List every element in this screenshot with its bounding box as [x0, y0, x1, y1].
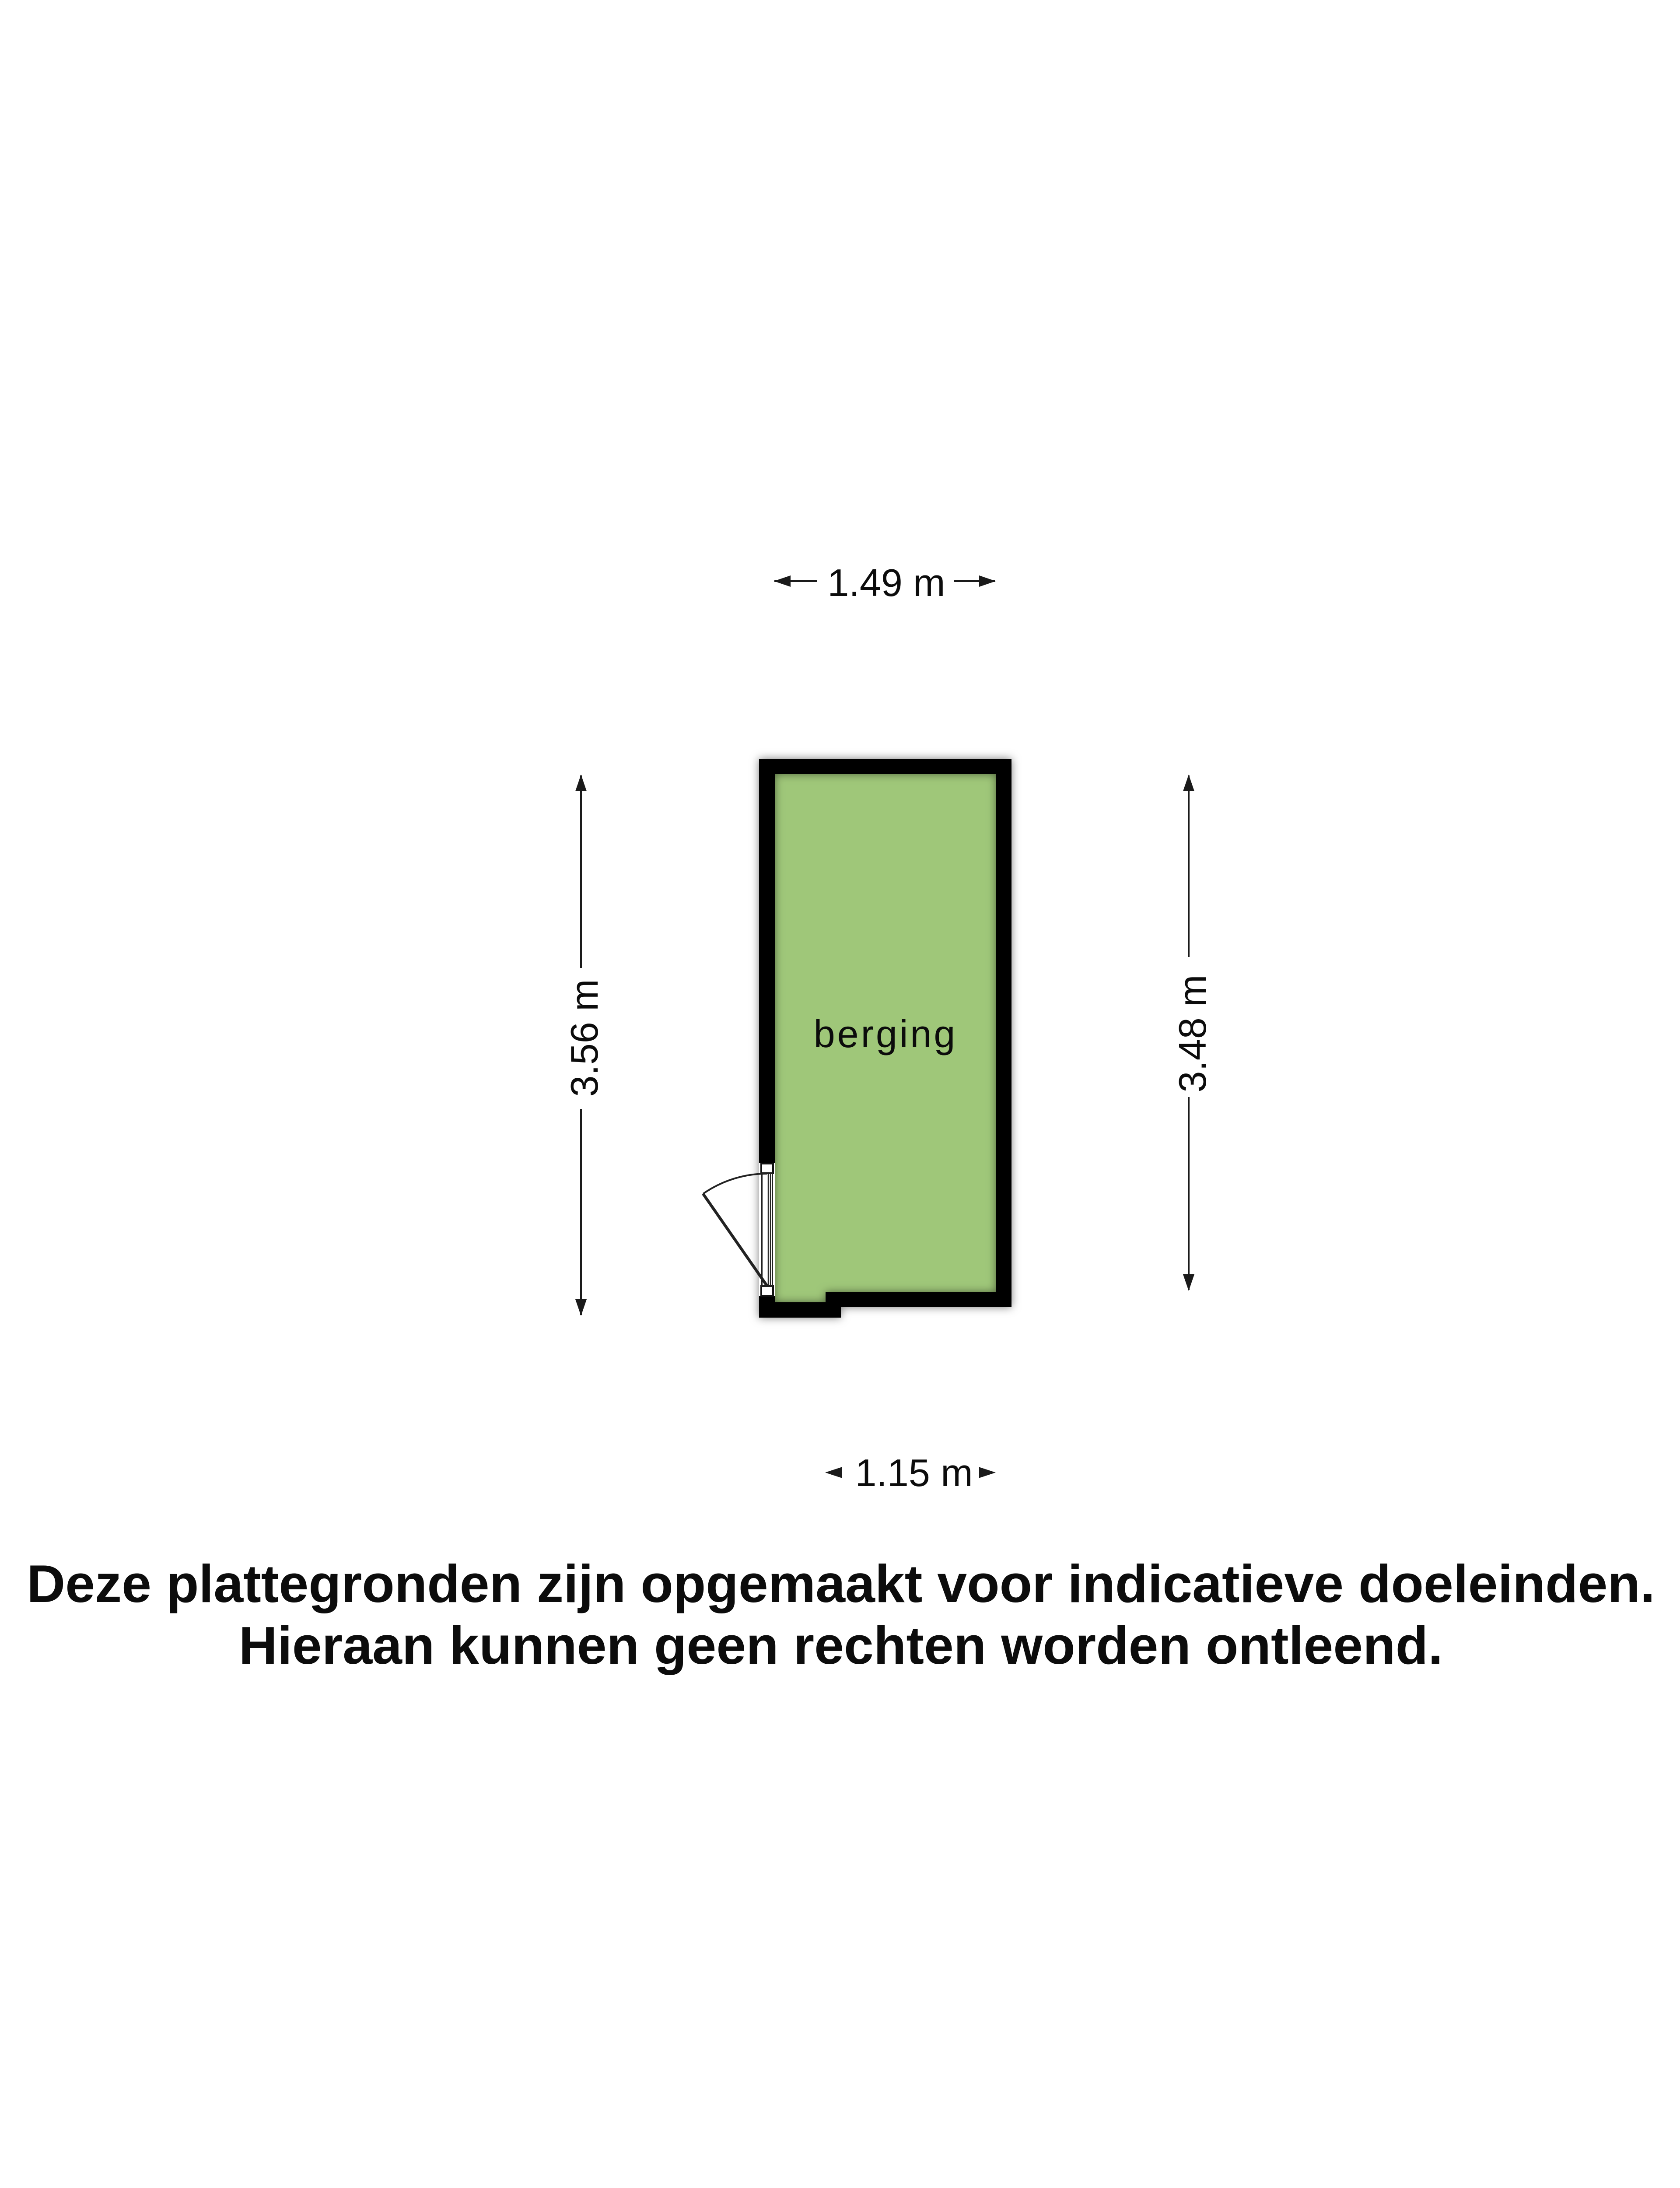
svg-text:berging: berging [814, 1012, 958, 1055]
svg-text:Deze plattegronden zijn opgema: Deze plattegronden zijn opgemaakt voor i… [27, 1554, 1655, 1613]
svg-text:3.48 m: 3.48 m [1171, 975, 1214, 1092]
svg-text:3.56 m: 3.56 m [563, 979, 606, 1097]
svg-text:1.15 m: 1.15 m [855, 1451, 973, 1494]
svg-text:Hieraan kunnen geen rechten wo: Hieraan kunnen geen rechten worden ontle… [239, 1616, 1443, 1675]
svg-text:1.49 m: 1.49 m [827, 561, 945, 604]
